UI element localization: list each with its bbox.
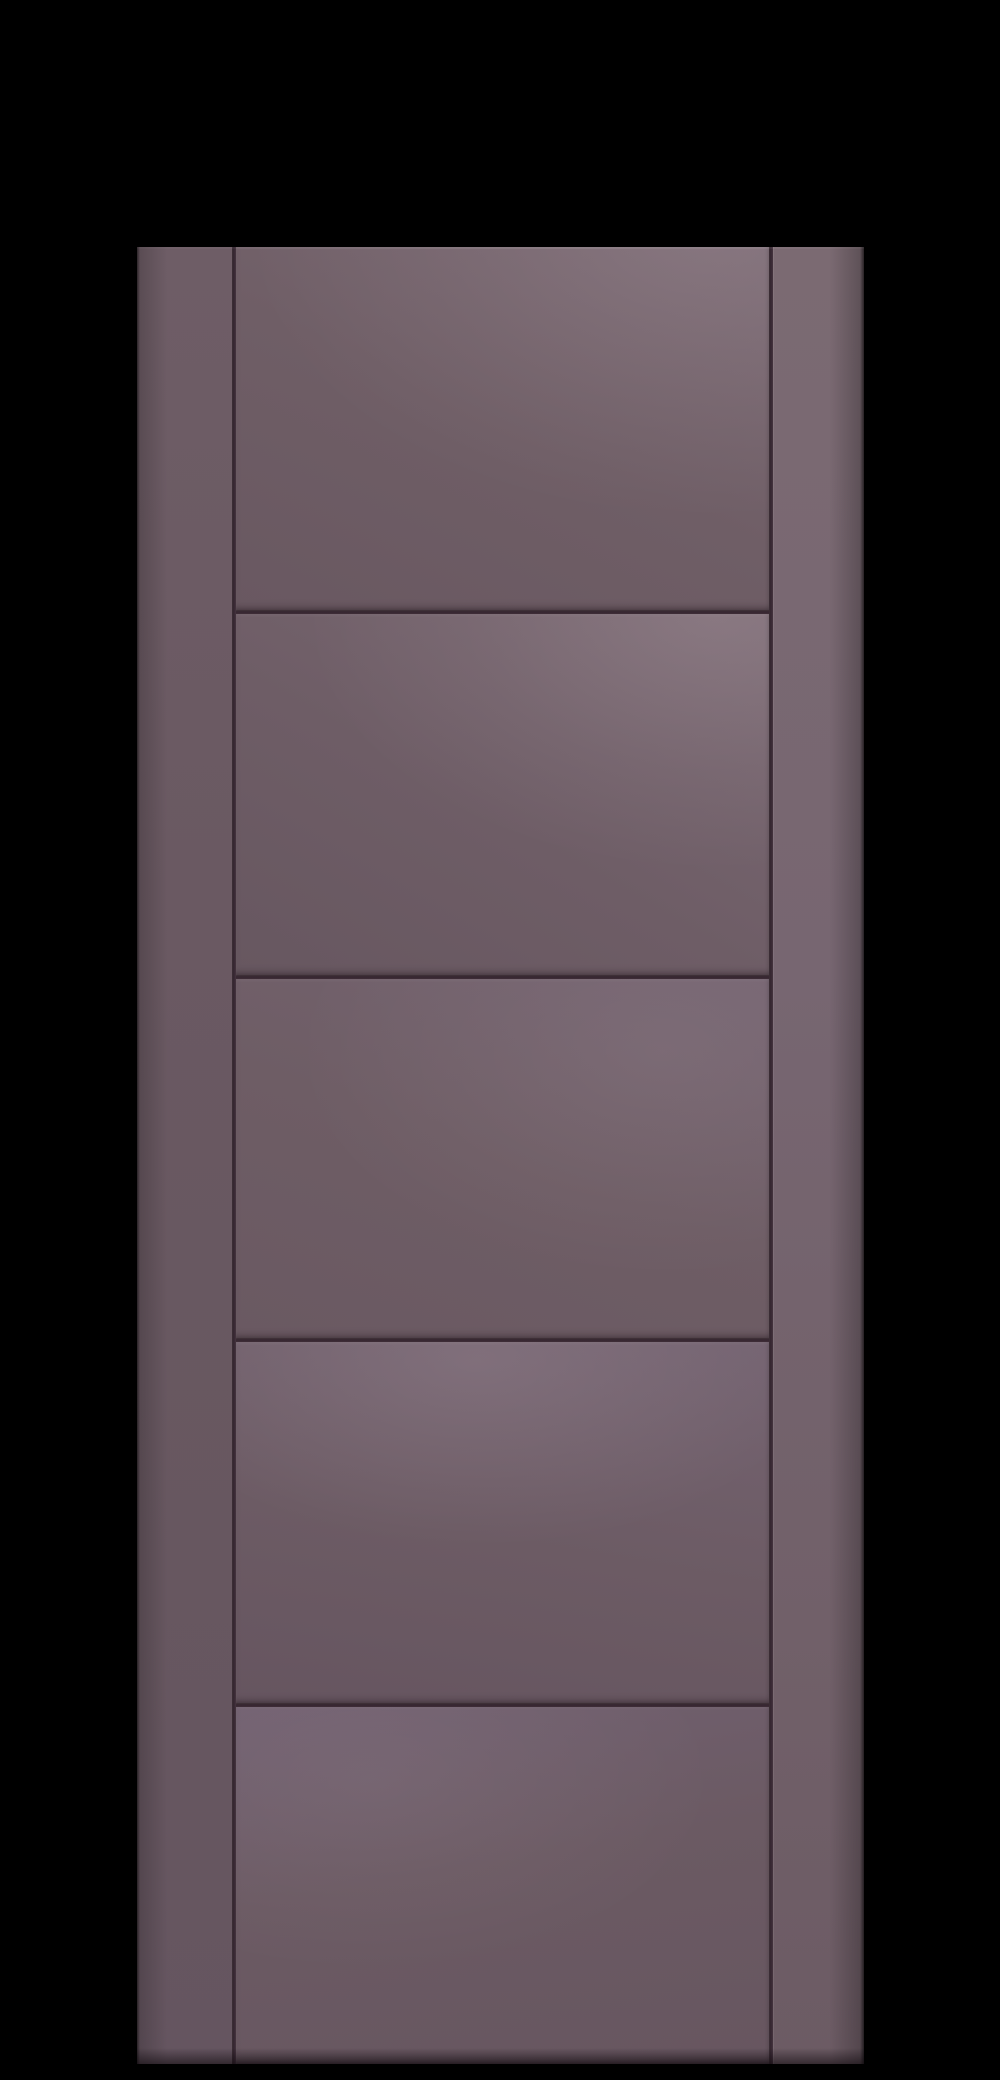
right-vertical-groove [769,247,773,2064]
door-panel-2 [236,614,769,975]
door-right-edge-shadow [860,247,864,2064]
door-right-stile [773,247,864,2064]
door-left-edge-shadow [137,247,140,2064]
door-top-edge-highlight [137,247,864,249]
backdrop [0,0,1000,2080]
door-panel-5 [236,1707,769,2064]
door-panel-column [236,247,769,2064]
door-panel-1 [236,247,769,610]
door-panel-4 [236,1342,769,1703]
door-panel-3 [236,979,769,1338]
door-bottom-shadow [137,2048,864,2064]
door-left-stile [137,247,232,2064]
door [137,247,864,2064]
